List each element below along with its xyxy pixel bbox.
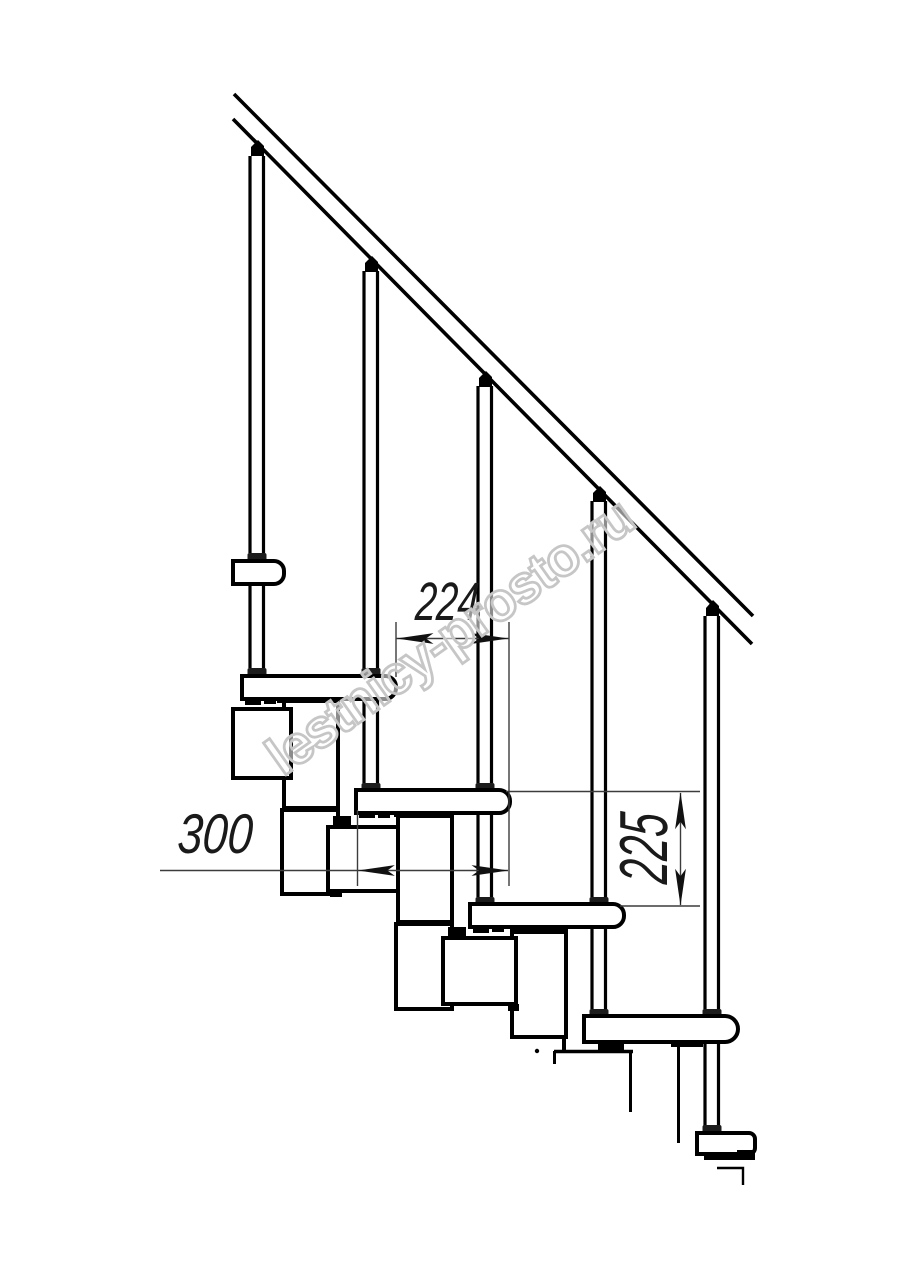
svg-text:225: 225 — [607, 810, 683, 887]
svg-text:300: 300 — [176, 802, 255, 865]
svg-text:lestnicy-prosto.ru: lestnicy-prosto.ru — [255, 487, 644, 787]
